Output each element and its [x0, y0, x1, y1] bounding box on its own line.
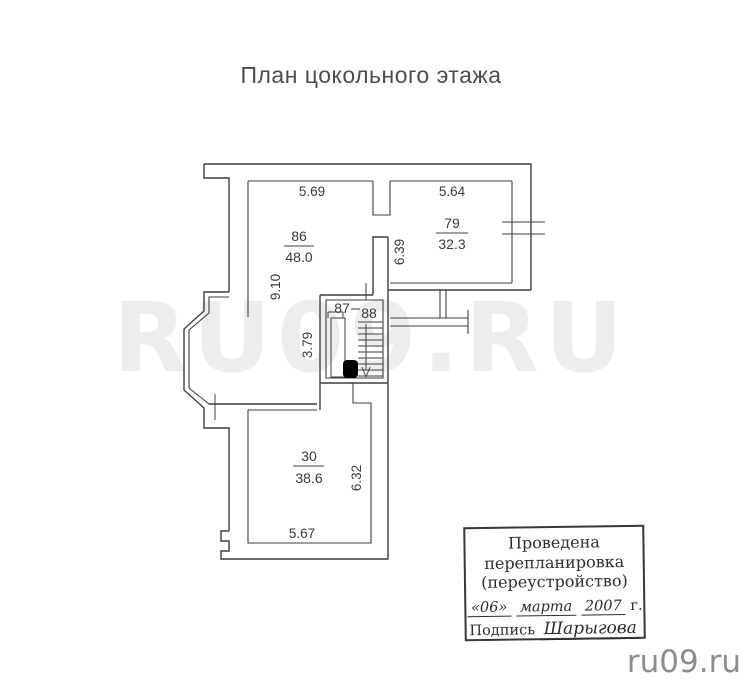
stamp-signature: Шарыгова	[540, 617, 641, 639]
room-30-number: 30	[301, 448, 317, 464]
room-88-number: 88	[361, 305, 377, 321]
stamp-date-suffix: г.	[630, 597, 642, 613]
dim-top-left: 5.69	[299, 184, 325, 199]
dim-left: 9.10	[268, 274, 283, 300]
walls-outer	[184, 164, 531, 559]
room-87-number: 87	[334, 300, 350, 316]
room-79-area: 32.3	[438, 236, 465, 252]
dim-top-right: 5.64	[439, 184, 466, 199]
staircase	[358, 321, 383, 377]
stamp-signature-row: Подпись Шарыгова	[467, 617, 644, 639]
dim-lower-right: 6.32	[349, 465, 364, 491]
room-79-number: 79	[444, 215, 460, 231]
room-30-area: 38.6	[295, 470, 322, 486]
stamp-date-row: «06» марта 2007 г.	[466, 597, 643, 615]
room-86-area: 48.0	[285, 249, 312, 265]
dim-middle: 6.39	[392, 239, 407, 265]
dim-stair: 3.79	[300, 332, 315, 358]
scanned-floor-plan-page: RU09.RU План цокольного этажа	[0, 0, 742, 682]
renovation-stamp: Проведена перепланировка (переустройство…	[463, 525, 646, 642]
wc-fixture	[328, 312, 358, 378]
dim-bottom: 5.67	[289, 526, 315, 541]
stamp-line-1: Проведена	[465, 532, 642, 554]
stamp-signature-label: Подпись	[469, 622, 535, 639]
stamp-date-day: «06»	[467, 599, 511, 617]
watermark-corner: ru09.ru	[627, 644, 741, 680]
stamp-date-month: марта	[516, 598, 577, 616]
stamp-date-year: 2007	[581, 598, 626, 616]
stamp-line-2: перепланировка	[466, 551, 643, 573]
stamp-line-3: (переустройство)	[466, 571, 643, 593]
room-86-number: 86	[291, 228, 307, 244]
window-symbols	[215, 222, 545, 420]
